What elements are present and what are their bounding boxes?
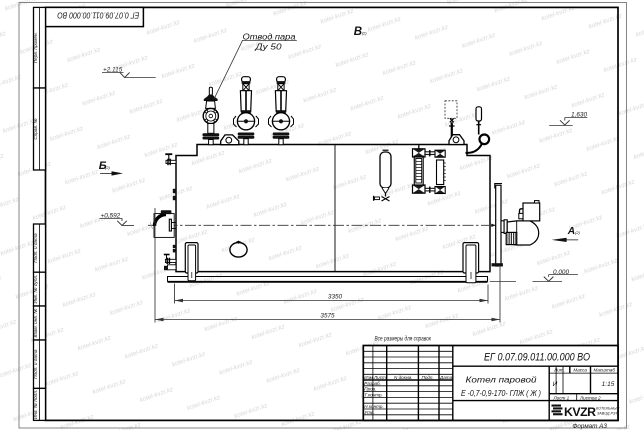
svg-text:0,000: 0,000	[553, 269, 569, 276]
svg-text:3350: 3350	[328, 294, 343, 301]
svg-text:Лист 1: Лист 1	[553, 396, 570, 401]
svg-text:KVZR: KVZR	[564, 405, 596, 419]
svg-text:Подп. и дата: Подп. и дата	[33, 233, 38, 263]
svg-text:ЕГ 0.07.09.011.00.000 ВО: ЕГ 0.07.09.011.00.000 ВО	[484, 352, 590, 364]
svg-text:(2): (2)	[105, 165, 111, 170]
svg-text:Н.контр.: Н.контр.	[364, 404, 383, 409]
svg-text:ЕГ 0.07.09.011.00.000 ВО: ЕГ 0.07.09.011.00.000 ВО	[57, 10, 139, 20]
svg-text:Справ. №: Справ. №	[33, 118, 38, 139]
svg-text:Т.контр.: Т.контр.	[364, 393, 383, 398]
svg-text:Инв. № дубл.: Инв. № дубл.	[33, 275, 38, 304]
svg-text:Изм.: Изм.	[364, 375, 374, 380]
svg-text:Утв.: Утв.	[364, 410, 374, 415]
svg-text:Пров.: Пров.	[364, 387, 376, 392]
svg-text:Дата: Дата	[439, 375, 453, 380]
svg-text:(2): (2)	[362, 31, 368, 36]
svg-text:Котел паровой: Котел паровой	[466, 375, 537, 385]
svg-text:3575: 3575	[320, 313, 335, 320]
svg-text:Лит.: Лит.	[553, 368, 565, 373]
svg-text:ЗАВОД РЭТ: ЗАВОД РЭТ	[597, 411, 618, 415]
svg-text:N докум.: N докум.	[394, 375, 413, 380]
svg-text:Подп. и дата: Подп. и дата	[33, 349, 38, 379]
svg-text:1:15: 1:15	[602, 381, 615, 388]
svg-text:Все размеры для справок: Все размеры для справок	[375, 337, 432, 343]
svg-text:Лист: Лист	[373, 375, 386, 380]
svg-text:Масштаб: Масштаб	[593, 368, 615, 373]
svg-text:КОТЕЛЬНЫЙ: КОТЕЛЬНЫЙ	[596, 406, 620, 410]
svg-text:Инв. № подл.: Инв. № подл.	[33, 390, 38, 419]
svg-text:Масса: Масса	[573, 368, 587, 373]
svg-text:Формат А3: Формат А3	[572, 423, 607, 430]
svg-text:Отвод пара: Отвод пара	[243, 32, 297, 41]
svg-text:И: И	[553, 381, 558, 388]
svg-text:Ду 50: Ду 50	[254, 43, 282, 52]
svg-text:Перв. примен.: Перв. примен.	[33, 32, 38, 63]
svg-text:Листов 2: Листов 2	[579, 396, 601, 401]
svg-text:Взам. инв. №: Взам. инв. №	[33, 309, 38, 338]
svg-text:Разраб.: Разраб.	[364, 381, 381, 386]
svg-text:Подп.: Подп.	[422, 375, 434, 380]
svg-text:Е -0,7-0,9-170- ГЛЖ ( Ж ): Е -0,7-0,9-170- ГЛЖ ( Ж )	[461, 389, 541, 398]
svg-text:(2): (2)	[575, 230, 581, 235]
svg-text:А: А	[567, 226, 575, 237]
